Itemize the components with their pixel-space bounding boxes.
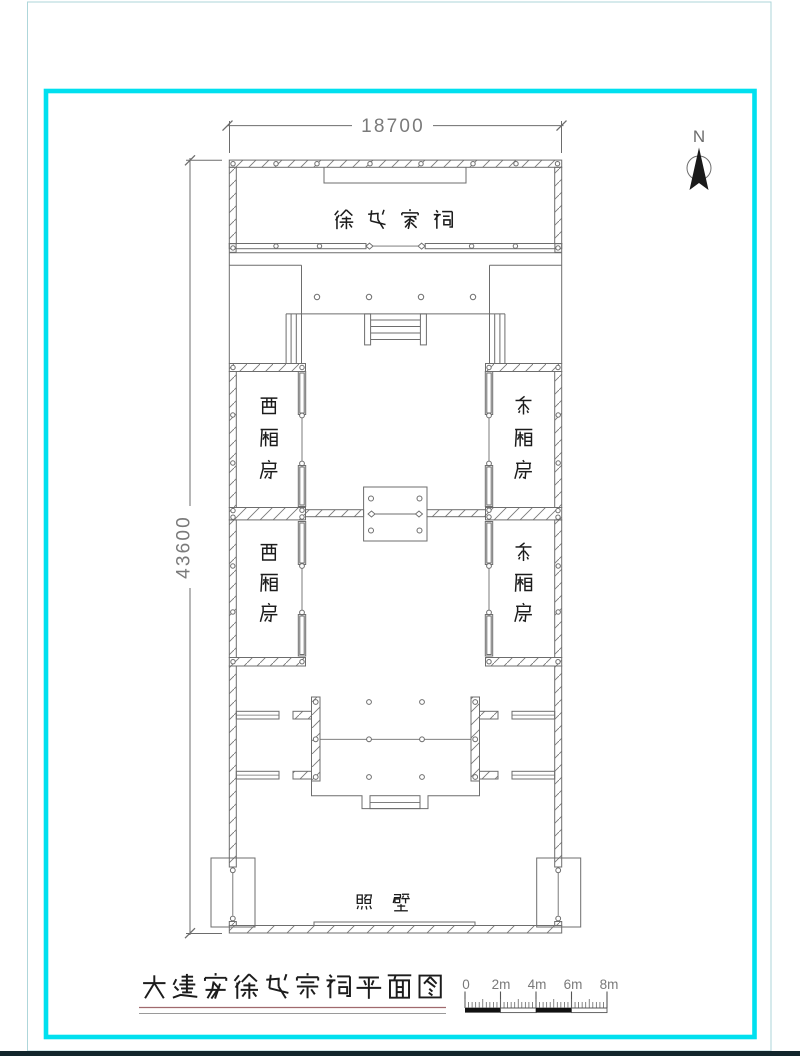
svg-text:4m: 4m [528,977,547,992]
svg-text:0: 0 [462,977,470,992]
svg-text:18700: 18700 [361,116,425,137]
svg-text:N: N [693,127,705,146]
svg-text:6m: 6m [564,977,583,992]
svg-text:43600: 43600 [174,515,195,579]
svg-text:2m: 2m [492,977,511,992]
svg-text:8m: 8m [600,977,619,992]
